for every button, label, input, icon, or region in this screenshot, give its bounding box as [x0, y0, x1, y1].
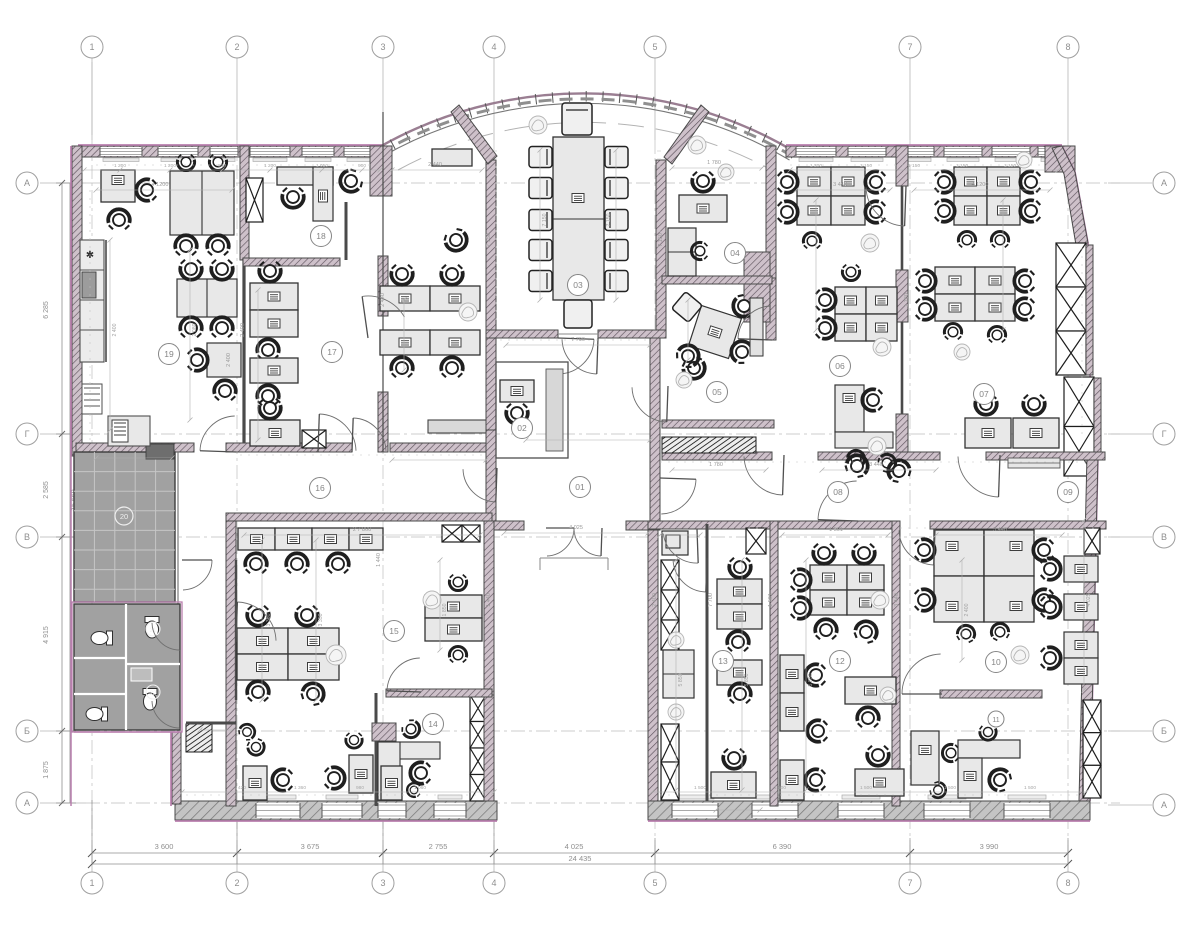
svg-text:08: 08: [833, 487, 843, 497]
svg-text:03: 03: [573, 280, 583, 290]
svg-text:4 915: 4 915: [43, 626, 50, 644]
svg-text:1 875: 1 875: [43, 761, 50, 779]
svg-text:2 080: 2 080: [192, 323, 198, 336]
svg-text:2 400: 2 400: [112, 323, 118, 336]
svg-text:4 025: 4 025: [565, 842, 584, 851]
svg-text:900: 900: [358, 163, 366, 169]
svg-text:900: 900: [218, 163, 226, 169]
svg-text:22: 22: [150, 691, 157, 697]
svg-text:3 440: 3 440: [833, 182, 847, 188]
svg-text:3: 3: [380, 42, 385, 52]
svg-text:7 150: 7 150: [542, 213, 548, 226]
svg-text:В: В: [1161, 532, 1167, 542]
svg-text:1 200: 1 200: [264, 163, 276, 169]
svg-text:1 780: 1 780: [904, 293, 910, 307]
svg-text:7 700: 7 700: [708, 593, 714, 607]
svg-text:1 060: 1 060: [414, 785, 426, 791]
svg-text:3 675: 3 675: [301, 842, 320, 851]
svg-text:980: 980: [356, 785, 364, 791]
svg-text:11: 11: [992, 717, 999, 724]
svg-text:19: 19: [164, 349, 174, 359]
svg-text:1 150: 1 150: [1004, 163, 1016, 169]
svg-text:1 150: 1 150: [956, 163, 968, 169]
svg-text:4 025: 4 025: [1086, 593, 1092, 606]
svg-text:4 1200: 4 1200: [972, 182, 989, 188]
svg-text:3 350: 3 350: [266, 613, 272, 626]
svg-text:8: 8: [1065, 42, 1070, 52]
svg-text:5: 5: [652, 878, 657, 888]
svg-text:А: А: [24, 798, 30, 808]
svg-text:1 440: 1 440: [376, 553, 382, 567]
svg-text:1 200: 1 200: [114, 163, 126, 169]
svg-text:1: 1: [89, 42, 94, 52]
svg-text:4: 4: [491, 878, 496, 888]
svg-text:4 025: 4 025: [569, 525, 583, 531]
svg-text:3 350: 3 350: [318, 613, 324, 626]
svg-text:1: 1: [89, 878, 94, 888]
svg-text:2: 2: [234, 878, 239, 888]
svg-text:1 501: 1 501: [768, 593, 774, 607]
svg-text:6 390: 6 390: [773, 842, 792, 851]
svg-text:13: 13: [718, 656, 728, 666]
svg-text:2 400: 2 400: [964, 603, 970, 616]
svg-text:1 500: 1 500: [1024, 785, 1036, 791]
svg-text:16: 16: [315, 483, 325, 493]
svg-text:14: 14: [428, 719, 438, 729]
svg-text:01: 01: [575, 482, 585, 492]
svg-text:06: 06: [835, 361, 845, 371]
svg-text:1 850: 1 850: [442, 603, 448, 616]
svg-text:1 440: 1 440: [486, 593, 492, 607]
svg-text:7 150: 7 150: [606, 213, 612, 226]
svg-text:1 360: 1 360: [294, 785, 306, 791]
svg-text:7 150: 7 150: [486, 233, 492, 247]
svg-text:5 850: 5 850: [744, 673, 750, 686]
svg-text:09: 09: [1063, 487, 1073, 497]
svg-text:2 585: 2 585: [43, 481, 50, 499]
svg-text:07: 07: [979, 389, 989, 399]
svg-text:6 285: 6 285: [43, 301, 50, 319]
svg-text:02: 02: [517, 423, 527, 433]
svg-text:1 050: 1 050: [316, 163, 328, 169]
svg-text:1 500: 1 500: [860, 785, 872, 791]
svg-text:2 440: 2 440: [380, 293, 386, 307]
svg-text:17: 17: [327, 347, 337, 357]
svg-text:4 1200: 4 1200: [152, 182, 169, 188]
svg-text:3 990: 3 990: [980, 842, 999, 851]
svg-text:2 400: 2 400: [652, 593, 658, 607]
svg-text:А: А: [24, 178, 30, 188]
svg-text:3 440: 3 440: [869, 462, 883, 468]
svg-text:1 200: 1 200: [810, 163, 822, 169]
svg-text:1 150: 1 150: [908, 163, 920, 169]
svg-text:3: 3: [380, 878, 385, 888]
svg-text:Г: Г: [1162, 429, 1167, 439]
svg-text:2 440: 2 440: [428, 162, 442, 168]
svg-text:1 200: 1 200: [164, 163, 176, 169]
svg-text:2: 2: [234, 42, 239, 52]
svg-text:Б: Б: [24, 726, 30, 736]
svg-text:2 400: 2 400: [226, 353, 232, 367]
svg-text:1 150: 1 150: [860, 163, 872, 169]
svg-text:12: 12: [835, 656, 845, 666]
svg-text:8: 8: [1065, 878, 1070, 888]
svg-text:7: 7: [907, 42, 912, 52]
svg-text:1 420: 1 420: [234, 785, 246, 791]
svg-text:5 850: 5 850: [808, 673, 814, 686]
svg-text:4: 4: [491, 42, 496, 52]
svg-text:24 435: 24 435: [569, 854, 592, 863]
svg-text:2 7 860: 2 7 860: [353, 527, 371, 533]
svg-text:1 780: 1 780: [709, 462, 723, 468]
svg-text:А: А: [1161, 800, 1167, 810]
svg-text:1 780: 1 780: [707, 160, 721, 166]
svg-text:Б: Б: [1161, 726, 1167, 736]
svg-text:2 755: 2 755: [429, 842, 448, 851]
svg-text:7 150: 7 150: [658, 233, 664, 247]
svg-text:3 440: 3 440: [894, 593, 900, 607]
svg-text:1 500: 1 500: [774, 785, 786, 791]
svg-text:3 600: 3 600: [155, 842, 174, 851]
svg-text:1 500: 1 500: [694, 785, 706, 791]
svg-text:Г: Г: [25, 429, 30, 439]
svg-text:5: 5: [652, 42, 657, 52]
svg-text:04: 04: [730, 248, 740, 258]
svg-text:15: 15: [389, 626, 399, 636]
svg-text:В: В: [24, 532, 30, 542]
svg-text:10: 10: [991, 657, 1001, 667]
svg-text:05: 05: [712, 387, 722, 397]
svg-text:7: 7: [907, 878, 912, 888]
svg-text:5 850: 5 850: [678, 673, 684, 686]
svg-text:1 500: 1 500: [944, 785, 956, 791]
svg-text:2 400: 2 400: [240, 323, 246, 337]
svg-text:А: А: [1161, 178, 1167, 188]
svg-text:18: 18: [316, 231, 326, 241]
svg-text:20: 20: [120, 512, 128, 521]
